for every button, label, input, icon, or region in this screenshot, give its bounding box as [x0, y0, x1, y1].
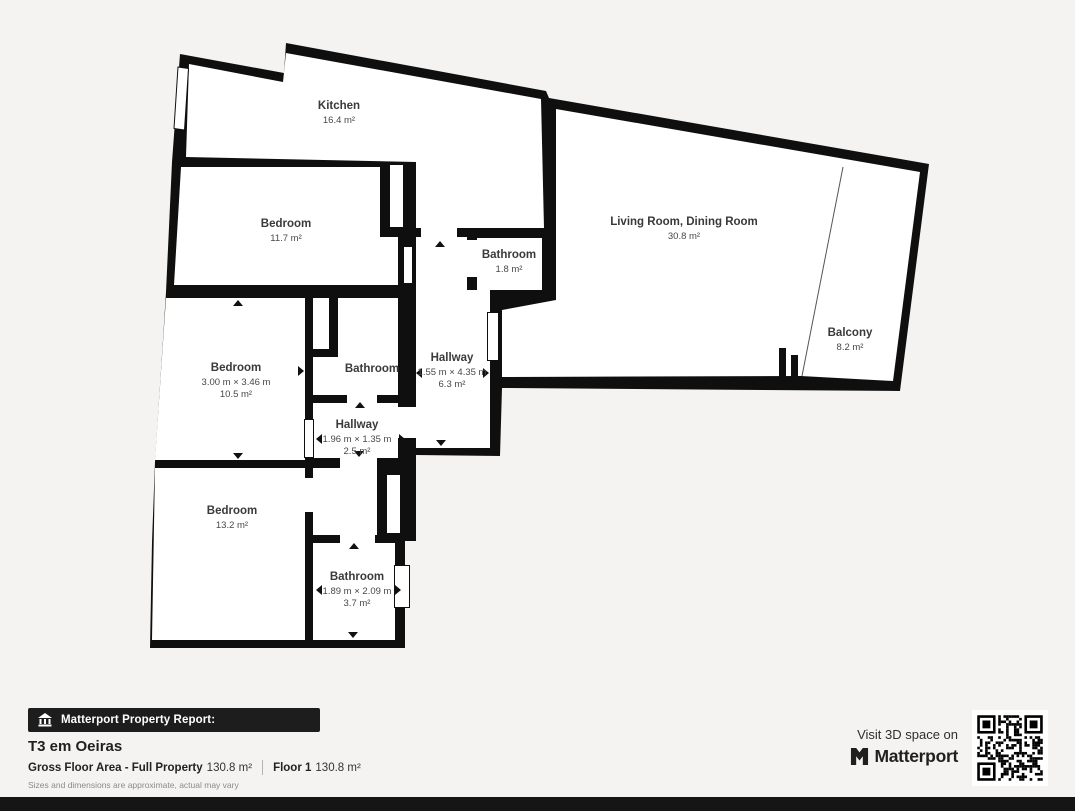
bathroom-big-door [340, 533, 375, 545]
floor-label: Floor 1 [273, 762, 311, 774]
cta-line: Visit 3D space on [845, 727, 958, 742]
hallway-small-opening [396, 407, 418, 438]
museum-building-icon [38, 713, 52, 727]
bathroom-mid-floor [313, 298, 398, 395]
bedroom1-floor [174, 167, 398, 285]
bedroom1-door-leaf [404, 247, 413, 284]
balcony-door-jamb-left [779, 348, 786, 378]
bedroom2-door-leaf [305, 420, 314, 458]
shaft-floor [390, 165, 403, 227]
disclaimer-text: Sizes and dimensions are approximate, ac… [28, 780, 239, 790]
bottom-bar [0, 797, 1075, 811]
vestibule-opening [340, 457, 377, 470]
visit-3d-cta[interactable]: Visit 3D space on Matterport [845, 727, 958, 767]
hallway-small-floor [313, 403, 398, 458]
bathroom-mid-door [347, 393, 377, 405]
bedroom3-door [303, 478, 315, 512]
bedroom3-floor [152, 468, 305, 640]
living-door-leaf [488, 313, 499, 361]
bathroom-small-door [465, 240, 479, 277]
matterport-logo-icon [850, 747, 869, 766]
living-balcony-floor [502, 109, 920, 381]
qr-code [972, 710, 1048, 786]
shaft2-floor [387, 475, 400, 533]
room-floors [152, 53, 920, 640]
property-report-page: { "plan": { "rooms": { "kitchen": {"name… [0, 0, 1075, 811]
bedroom2-floor [155, 298, 305, 460]
vestibule-floor [313, 468, 377, 535]
floor-plan [0, 0, 1075, 700]
report-badge-label: Matterport Property Report: [61, 714, 215, 726]
bathroom-small-floor [477, 238, 542, 290]
property-title: T3 em Oeiras [28, 738, 122, 755]
kitchen-hallway-door [421, 226, 457, 239]
area-metrics: Gross Floor Area - Full Property 130.8 m… [28, 760, 361, 775]
bathroom-mid-alcove-stub [313, 349, 338, 357]
report-badge: Matterport Property Report: [28, 708, 320, 732]
gfa-value: 130.8 m² [207, 762, 252, 774]
metrics-divider [262, 760, 263, 775]
balcony-door-jamb-right [791, 355, 798, 378]
gfa-label: Gross Floor Area - Full Property [28, 762, 203, 774]
bathroom-mid-alcove-wall [329, 298, 338, 353]
matterport-brand-text: Matterport [874, 746, 958, 767]
bathroom-big-floor [313, 543, 395, 640]
floor-value: 130.8 m² [315, 762, 360, 774]
